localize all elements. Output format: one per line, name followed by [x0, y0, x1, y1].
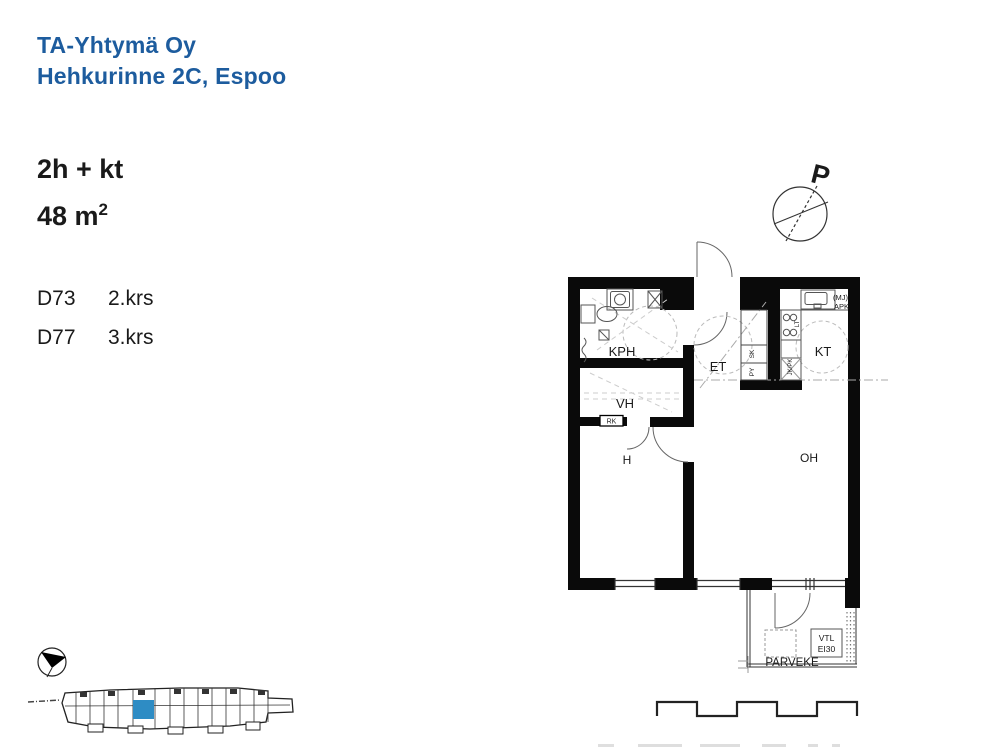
rk-cabinet: RK: [600, 416, 623, 427]
site-compass: [38, 648, 66, 677]
apk-label: APK: [834, 302, 849, 311]
compass-needle-icon: [41, 652, 66, 668]
toilet-icon: [581, 305, 595, 323]
room-label-vh: VH: [616, 396, 634, 411]
rk-label: RK: [607, 419, 617, 426]
floor-plan-drawing: P: [0, 0, 1000, 750]
h-door-arc: [653, 427, 688, 462]
room-label-kt: KT: [815, 344, 832, 359]
vtl-badge: VTL EI30: [811, 629, 842, 657]
balcony-screen: [847, 612, 854, 662]
balcony-door-arc: [775, 593, 810, 628]
jk-pk-label: JK/PK: [788, 359, 794, 376]
north-indicator: P: [773, 158, 833, 241]
vh-door-arc: [627, 427, 649, 449]
room-label-oh: OH: [800, 451, 818, 465]
py-label: PY: [749, 367, 756, 376]
cutoff-print-fragments: [598, 744, 840, 747]
room-label-et: ET: [710, 359, 727, 374]
balcony-hatch: [765, 630, 796, 657]
sk-label: SK: [749, 349, 756, 358]
room-label-parveke: PARVEKE: [765, 657, 819, 669]
unit-location-highlight: [133, 700, 154, 719]
window-symbols: [615, 578, 845, 590]
lt-label: LT: [795, 320, 801, 327]
mj-label: (MJ): [833, 293, 848, 302]
floor-plan-page: TA-Yhtymä Oy Hehkurinne 2C, Espoo 2h + k…: [0, 0, 1000, 750]
vtl-label: VTL: [819, 633, 835, 643]
room-label-kph: KPH: [609, 344, 636, 359]
north-label: P: [808, 158, 833, 191]
entry-door-arc: [697, 242, 732, 277]
scale-bar: [657, 702, 857, 716]
plan-walls: [568, 277, 860, 608]
site-key-plan: [28, 688, 293, 734]
ei30-label: EI30: [818, 644, 836, 654]
room-label-h: H: [623, 453, 632, 467]
north-needle: [786, 186, 817, 241]
